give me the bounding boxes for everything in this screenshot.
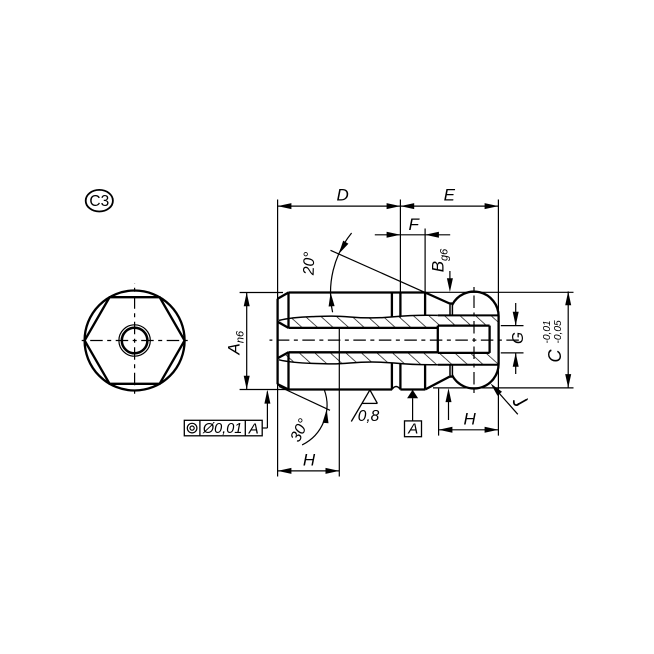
svg-text:F: F xyxy=(409,215,421,234)
svg-text:E: E xyxy=(444,186,456,205)
svg-text:H: H xyxy=(464,410,477,429)
svg-text:C: C xyxy=(545,349,565,363)
svg-text:D: D xyxy=(337,186,349,205)
svg-text:A: A xyxy=(248,420,259,437)
svg-text:0,8: 0,8 xyxy=(358,408,380,425)
svg-text:C3: C3 xyxy=(89,193,109,210)
svg-text:-0,01: -0,01 xyxy=(542,320,553,343)
svg-text:Ø0,01: Ø0,01 xyxy=(202,421,243,437)
svg-text:-0,05: -0,05 xyxy=(553,320,564,344)
svg-text:20°: 20° xyxy=(301,251,319,276)
svg-text:G: G xyxy=(510,332,527,344)
svg-text:H: H xyxy=(303,451,316,470)
svg-text:A: A xyxy=(407,421,418,438)
